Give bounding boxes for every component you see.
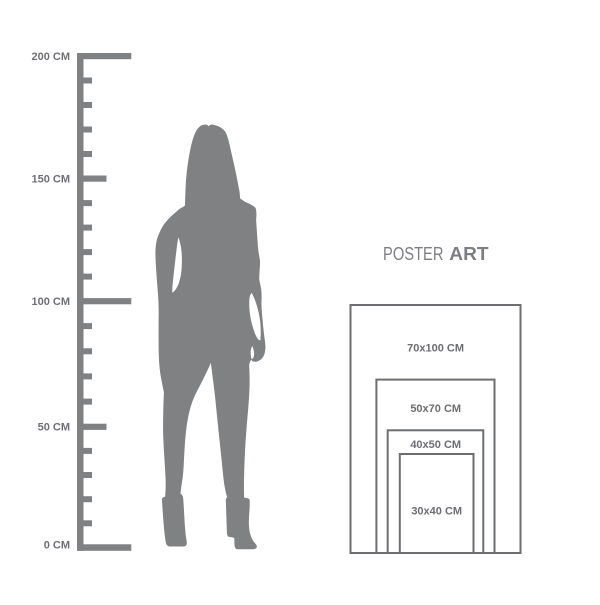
svg-text:150 CM: 150 CM: [31, 174, 70, 186]
svg-text:30x40 CM: 30x40 CM: [411, 505, 462, 517]
svg-text:POSTERART: POSTERART: [383, 244, 489, 264]
svg-text:100 CM: 100 CM: [31, 296, 70, 308]
svg-text:40x50 CM: 40x50 CM: [410, 439, 461, 451]
svg-text:200 CM: 200 CM: [31, 51, 70, 63]
svg-text:0 CM: 0 CM: [44, 539, 70, 551]
svg-text:50x70 CM: 50x70 CM: [410, 403, 461, 415]
svg-text:70x100 CM: 70x100 CM: [407, 343, 464, 355]
svg-text:50 CM: 50 CM: [38, 421, 70, 433]
